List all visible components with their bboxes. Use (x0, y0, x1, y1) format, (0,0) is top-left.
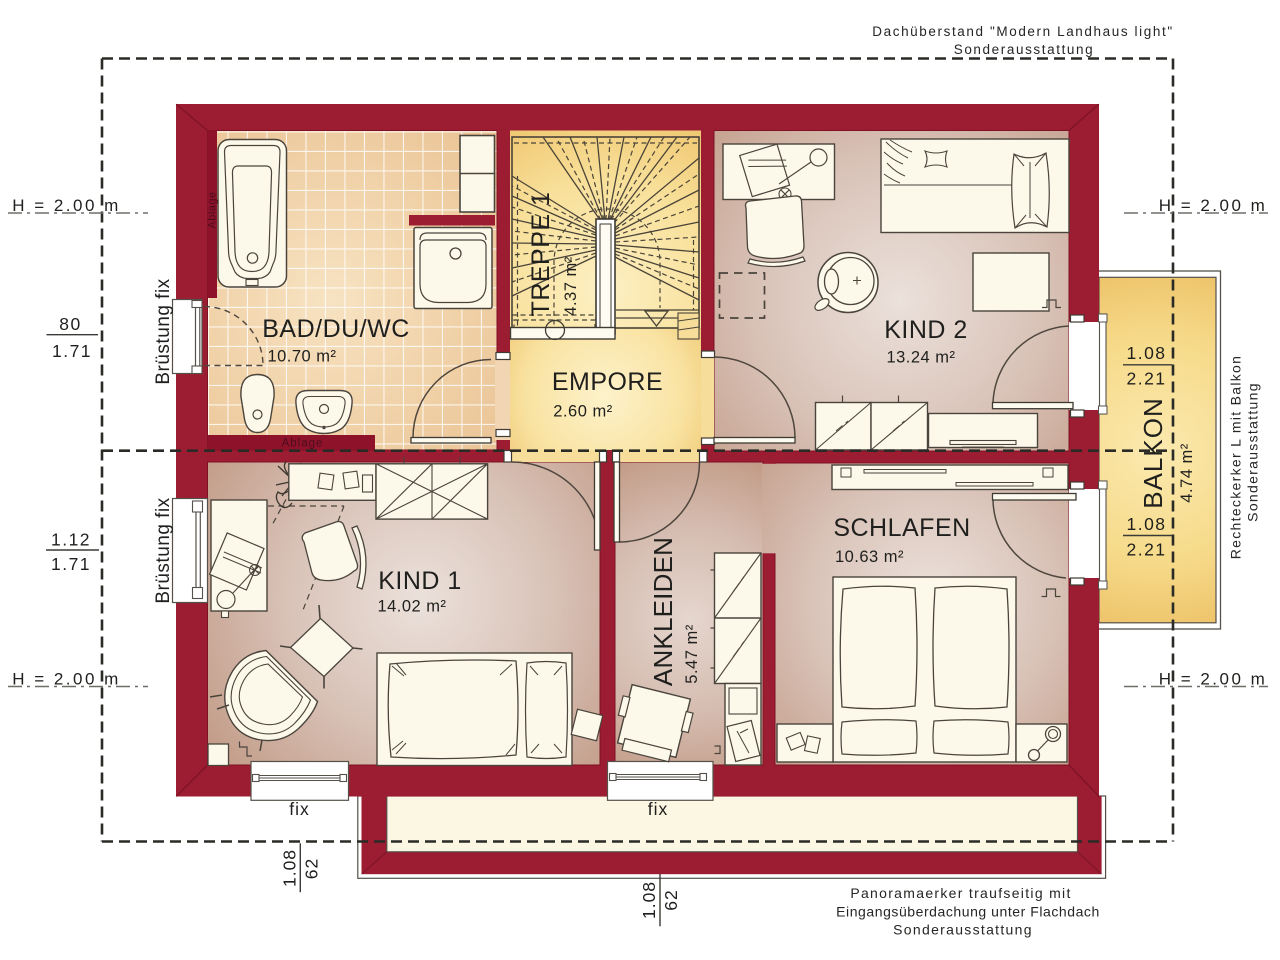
svg-text:Brüstung fix: Brüstung fix (153, 278, 174, 384)
svg-text:Eingangsüberdachung unter Flac: Eingangsüberdachung unter Flachdach (836, 904, 1100, 920)
svg-text:1.08: 1.08 (280, 849, 300, 887)
svg-text:Sonderausstattung: Sonderausstattung (1245, 382, 1261, 522)
svg-text:Ablage: Ablage (282, 438, 324, 450)
svg-text:H = 2.00 m: H = 2.00 m (12, 196, 121, 215)
svg-text:Brüstung fix: Brüstung fix (153, 497, 174, 603)
svg-text:10.63 m²: 10.63 m² (835, 548, 904, 566)
svg-text:1.08: 1.08 (1126, 343, 1166, 363)
svg-text:1.08: 1.08 (1126, 514, 1166, 534)
svg-text:10.70 m²: 10.70 m² (267, 348, 336, 366)
svg-text:2.21: 2.21 (1126, 540, 1166, 560)
svg-text:2.21: 2.21 (1126, 369, 1166, 389)
svg-text:Rechteckerker L mit Balkon: Rechteckerker L mit Balkon (1228, 355, 1244, 559)
svg-text:1.71: 1.71 (52, 341, 92, 361)
svg-text:62: 62 (302, 858, 322, 879)
svg-text:KIND 2: KIND 2 (884, 316, 968, 344)
svg-text:H = 2.00 m: H = 2.00 m (1159, 196, 1268, 215)
svg-text:62: 62 (661, 889, 681, 910)
svg-text:5.47 m²: 5.47 m² (683, 624, 701, 683)
svg-text:Sonderausstattung: Sonderausstattung (954, 42, 1095, 57)
svg-text:BALKON: BALKON (1138, 397, 1168, 509)
svg-text:H = 2.00 m: H = 2.00 m (12, 670, 121, 689)
svg-text:TREPPE 1: TREPPE 1 (527, 192, 555, 317)
svg-text:4.74 m²: 4.74 m² (1178, 443, 1196, 502)
svg-text:Dachüberstand "Modern Landhaus: Dachüberstand "Modern Landhaus light" (872, 24, 1173, 39)
svg-text:2.60 m²: 2.60 m² (553, 403, 612, 421)
svg-text:14.02 m²: 14.02 m² (377, 598, 446, 616)
svg-text:fix: fix (289, 799, 310, 819)
svg-text:1.12: 1.12 (51, 530, 91, 550)
svg-text:SCHLAFEN: SCHLAFEN (833, 514, 970, 542)
svg-text:13.24 m²: 13.24 m² (886, 349, 955, 367)
svg-text:Panoramaerker traufseitig mit: Panoramaerker traufseitig mit (850, 885, 1071, 901)
svg-text:BAD/DU/WC: BAD/DU/WC (262, 315, 410, 343)
svg-text:KIND 1: KIND 1 (378, 567, 462, 595)
svg-text:Sonderausstattung: Sonderausstattung (893, 922, 1033, 938)
svg-text:1.71: 1.71 (51, 554, 91, 574)
svg-text:4.37 m²: 4.37 m² (562, 256, 580, 315)
svg-text:EMPORE: EMPORE (552, 368, 663, 396)
svg-text:H = 2.00 m: H = 2.00 m (1159, 670, 1268, 689)
svg-text:ANKLEIDEN: ANKLEIDEN (648, 537, 678, 686)
svg-text:1.08: 1.08 (639, 881, 659, 919)
svg-text:fix: fix (648, 799, 669, 819)
svg-text:80: 80 (59, 314, 81, 334)
svg-text:Ablage: Ablage (207, 191, 219, 228)
